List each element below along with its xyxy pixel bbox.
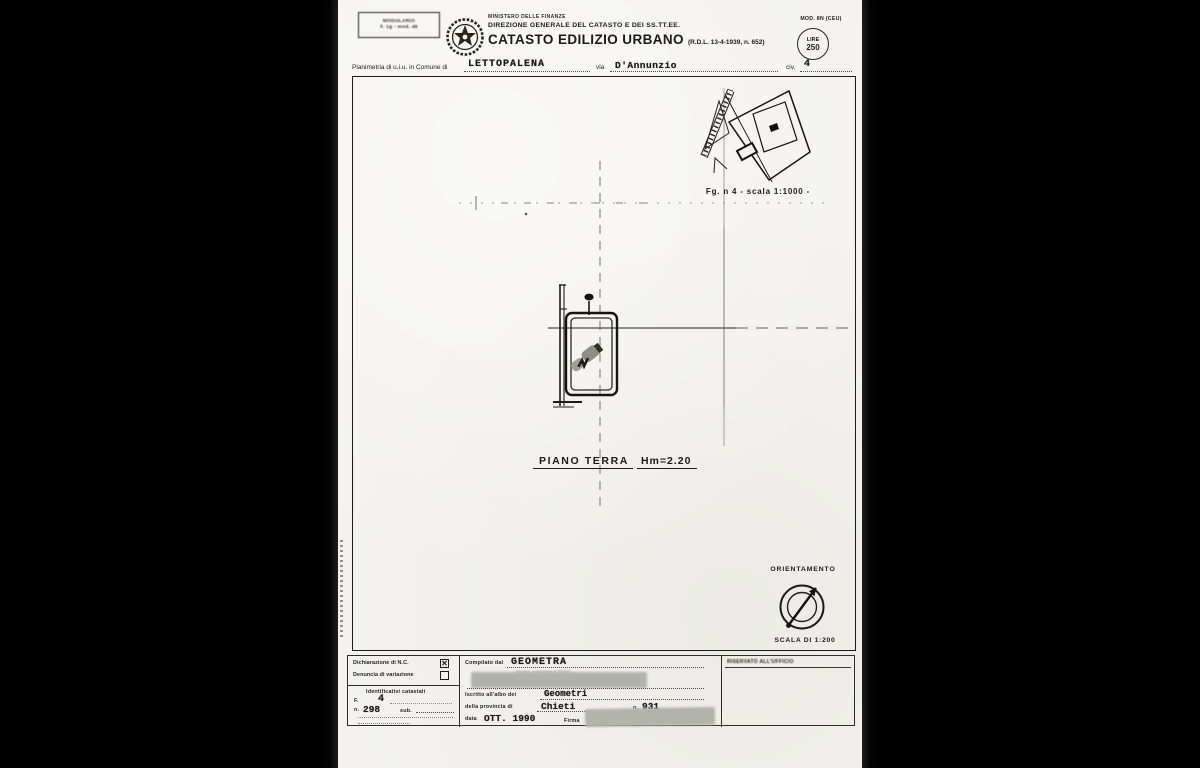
floor-name: PIANO TERRA bbox=[533, 455, 633, 469]
modulario-box: MODULARIO F. 1g - mod. 48 bbox=[358, 12, 440, 38]
floor-label: PIANO TERRAHm=2.20 bbox=[533, 451, 723, 469]
variation-label: Denuncia di variazione bbox=[353, 672, 414, 678]
location-prefix: Planimetria di u.i.u. in Comune di bbox=[352, 64, 447, 71]
signature-label: Firma bbox=[564, 718, 580, 724]
header-text: MINISTERO DELLE FINANZE DIREZIONE GENERA… bbox=[488, 14, 788, 49]
compiler-line bbox=[507, 667, 704, 668]
state-emblem-icon bbox=[442, 12, 488, 62]
inset-caption: Fg. n 4 - scala 1:1000 - bbox=[683, 187, 833, 196]
register-label: Iscritto all'albo dei bbox=[465, 692, 516, 698]
province-label: della provincia di bbox=[465, 704, 513, 710]
office-reserved-label: RISERVATO ALL'UFFICIO bbox=[727, 659, 794, 665]
extra-line-2 bbox=[358, 723, 410, 724]
declaration-nc-checkbox: ✕ bbox=[440, 659, 449, 668]
via-label: via bbox=[596, 64, 604, 71]
fee-stamp-amount: 250 bbox=[806, 43, 819, 52]
particella-value: 298 bbox=[363, 704, 380, 715]
ministry-line: MINISTERO DELLE FINANZE bbox=[488, 14, 788, 20]
footer-divider-1 bbox=[459, 656, 460, 727]
document-title: CATASTO EDILIZIO URBANO bbox=[488, 32, 684, 47]
compass-icon bbox=[773, 577, 833, 637]
floor-height: Hm=2.20 bbox=[637, 455, 698, 469]
identifiers-heading: Identificativi catastali bbox=[366, 689, 425, 695]
checkbox-section-border bbox=[348, 685, 459, 686]
office-underline bbox=[725, 667, 851, 668]
variation-checkbox bbox=[440, 671, 449, 680]
modulario-line2: F. 1g - mod. 48 bbox=[380, 25, 418, 31]
register-value: Geometri bbox=[544, 689, 587, 699]
compiled-by-label: Compilato dal bbox=[465, 660, 503, 666]
document-page: MODULARIO F. 1g - mod. 48 MINISTERO DELL… bbox=[338, 0, 862, 768]
extra-line-1 bbox=[358, 717, 453, 718]
footer-form: Dichiarazione di N.C. ✕ Denuncia di vari… bbox=[347, 655, 855, 726]
date-label: data bbox=[465, 716, 477, 722]
comune-underline bbox=[464, 71, 590, 72]
foglio-line bbox=[390, 703, 452, 704]
inset-map bbox=[701, 89, 810, 182]
plan-symbol-dot bbox=[584, 294, 593, 301]
date-value: OTT. 1990 bbox=[484, 713, 535, 724]
margin-print-marks bbox=[340, 540, 343, 640]
civ-underline bbox=[800, 71, 852, 72]
redacted-signature bbox=[585, 707, 715, 727]
particella-label: n. bbox=[354, 707, 359, 713]
scale-note: SCALA DI 1:200 bbox=[757, 637, 853, 644]
via-underline bbox=[610, 71, 778, 72]
declaration-nc-label: Dichiarazione di N.C. bbox=[353, 660, 409, 666]
via-value: D'Annunzio bbox=[615, 60, 677, 71]
building-plan bbox=[553, 285, 617, 407]
directorate-line: DIREZIONE GENERALE DEL CATASTO E DEI SS.… bbox=[488, 22, 788, 29]
fold-lines bbox=[459, 88, 852, 507]
document-title-ref: (R.D.L. 13-4-1939, n. 652) bbox=[688, 39, 765, 46]
orientation-title: ORIENTAMENTO bbox=[753, 566, 853, 573]
redacted-name bbox=[471, 672, 647, 688]
register-line bbox=[540, 699, 704, 700]
parcel-boundary bbox=[729, 91, 810, 180]
mod-code: MOD. 8N (CEU) bbox=[786, 16, 856, 22]
sub-label: sub. bbox=[400, 708, 412, 714]
foglio-label: F. bbox=[354, 698, 359, 704]
civ-label: civ. bbox=[786, 64, 795, 71]
civ-value: 4 bbox=[804, 59, 810, 70]
comune-value: LETTOPALENA bbox=[468, 59, 545, 70]
fee-stamp: LIRE 250 bbox=[797, 28, 829, 60]
illegible-stamp bbox=[568, 341, 604, 373]
sub-line bbox=[416, 712, 454, 713]
office-section: RISERVATO ALL'UFFICIO bbox=[721, 656, 856, 727]
scan-background: MODULARIO F. 1g - mod. 48 MINISTERO DELL… bbox=[0, 0, 1200, 768]
plan-frame: Fg. n 4 - scala 1:1000 - PIANO TERRAHm=2… bbox=[352, 76, 856, 651]
